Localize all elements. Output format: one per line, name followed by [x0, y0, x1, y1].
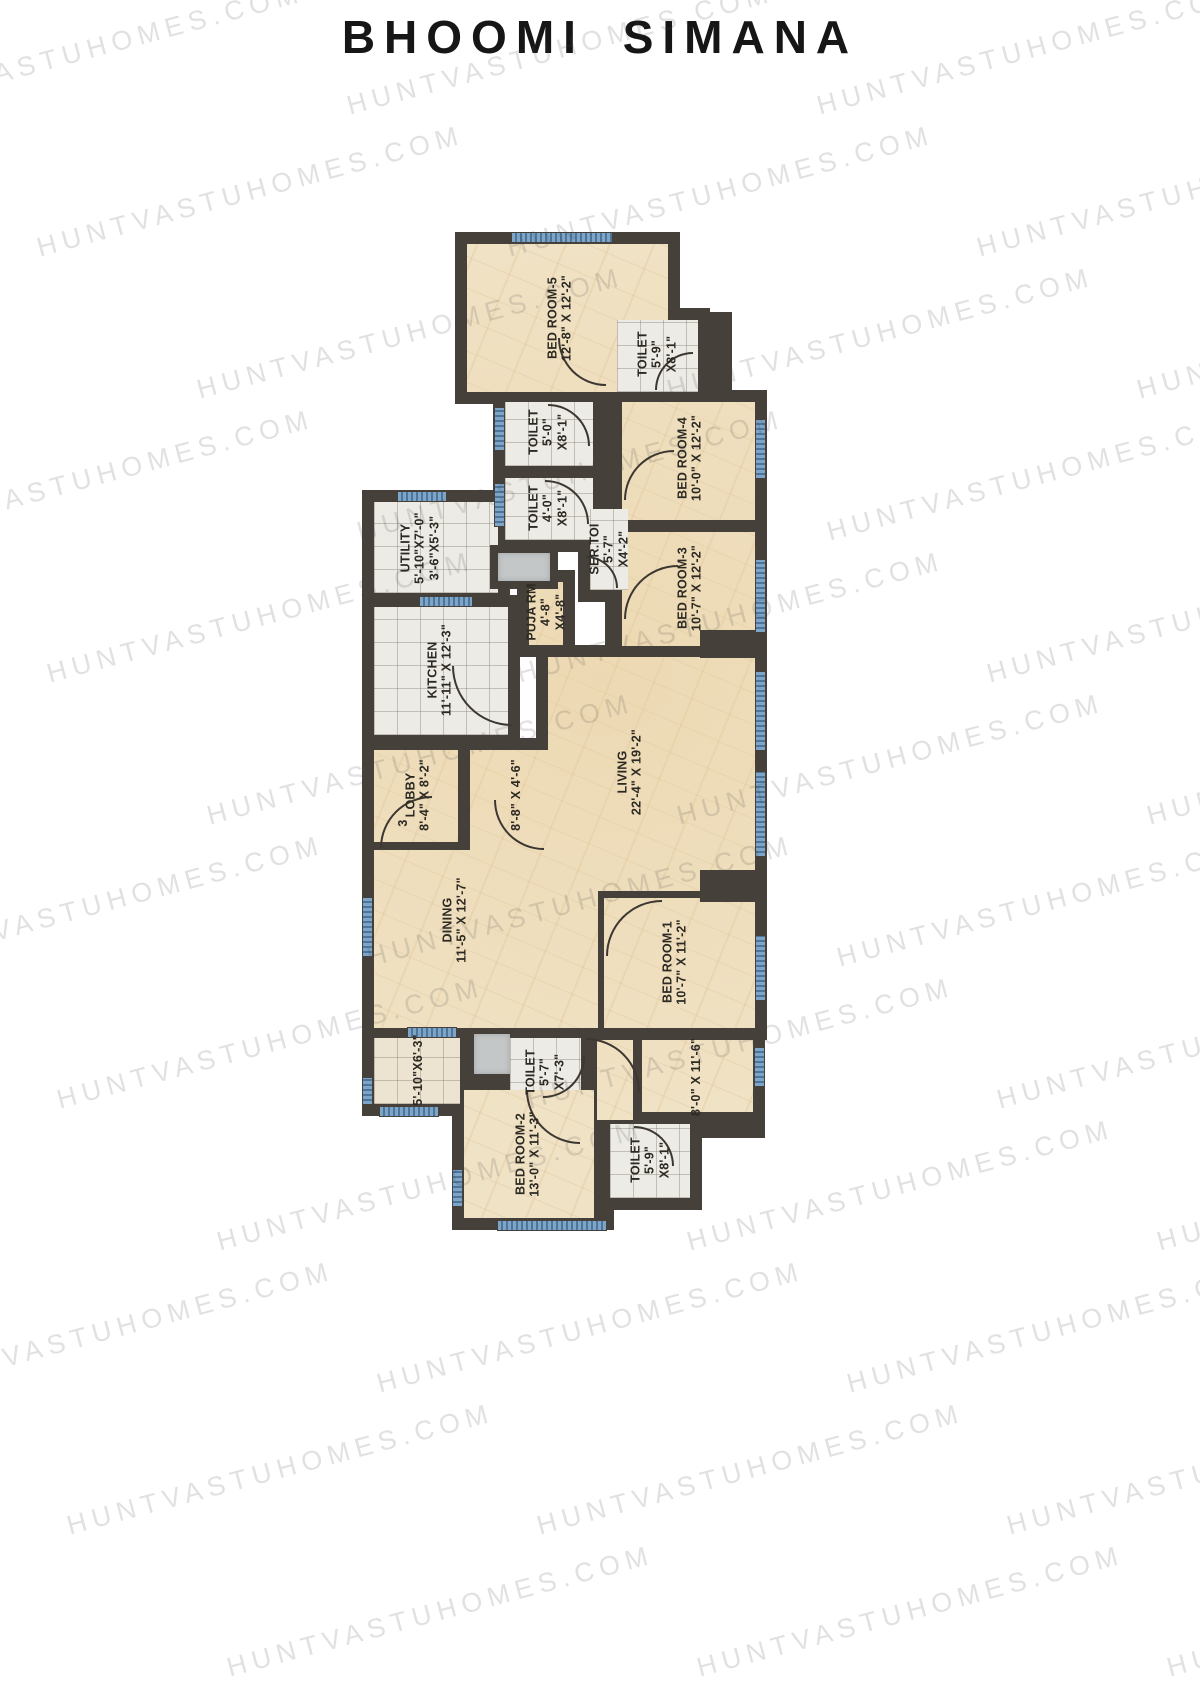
window-bedroom2: [498, 1221, 606, 1230]
room-label-bedroom2: BED ROOM-2 13'-0" X 11'-3": [514, 1111, 543, 1196]
room-dims: 8'-0" X 11'-6": [689, 1038, 703, 1116]
room-dims2: X4'-8": [553, 583, 567, 640]
window-bedroom2-left: [453, 1170, 462, 1206]
room-dims: 5'-10"X6'-3": [411, 1034, 425, 1106]
room-label-toilet4: TOILET 5'-7" X7'-3": [523, 1049, 566, 1094]
room-dims: 12'-8" X 12'-2": [560, 275, 574, 361]
room-name: KITCHEN: [426, 624, 440, 716]
room-dims2: X4'-2": [616, 523, 630, 574]
room-label-bedroom3: BED ROOM-3 10'-7" X 12'-2": [676, 545, 705, 631]
shaft-box: [474, 1034, 510, 1074]
floor-living: [548, 657, 755, 891]
room-label-bedroom5: BED ROOM-5 12'-8" X 12'-2": [546, 275, 575, 361]
room-dims: 13'-0" X 11'-3": [528, 1111, 542, 1196]
room-label-passage: 8'-8" X 4'-6": [509, 759, 523, 831]
room-label-living: LIVING 22'-4" X 19'-2": [616, 729, 645, 815]
room-name: BED ROOM-1: [661, 919, 675, 1004]
room-label-foyer: 8'-0" X 11'-6": [689, 1038, 703, 1116]
window-dry-bottom: [380, 1107, 438, 1116]
window-bedroom4: [756, 420, 765, 478]
room-label-toilet2: TOILET 5'-0" X8'-1": [526, 409, 569, 454]
room-dims: 11'-11" X 12'-3": [440, 624, 454, 716]
room-dims: 8'-8" X 4'-6": [509, 759, 523, 831]
room-name: LIVING: [616, 729, 630, 815]
room-name: TOILET: [526, 485, 540, 530]
room-label-utility: UTILITY 5'-10"X7'-0" 3'-6"X5'-3": [398, 512, 441, 584]
room-dims: 10'-7" X 12'-2": [690, 545, 704, 631]
window-utility: [398, 492, 446, 501]
room-dims: 4'-0": [541, 485, 555, 530]
floor-plan-page: { "title": "BHOOMI SIMANA", "watermark_t…: [0, 0, 1200, 1697]
room-dims2: X8'-1": [664, 331, 678, 376]
room-dims2: X8'-1": [555, 409, 569, 454]
room-dims: 22'-4" X 19'-2": [630, 729, 644, 815]
wall-chunk-living: [700, 870, 767, 902]
window-living-2: [756, 772, 765, 856]
window-dining: [363, 898, 372, 956]
room-name: PUJA RM: [524, 583, 538, 640]
window-dry-left: [363, 1078, 372, 1104]
room-label-dry-area: 5'-10"X6'-3": [411, 1034, 425, 1106]
floor-corridor: [550, 884, 598, 1028]
room-label-bedroom4: BED ROOM-4 10'-0" X 12'-2": [676, 415, 705, 501]
window-toilet2: [495, 408, 504, 450]
window-kitchen: [420, 597, 472, 606]
floor-plan: BED ROOM-5 12'-8" X 12'-2" TOILET 5'-9" …: [0, 0, 1200, 1697]
door-number: 3: [396, 819, 410, 826]
room-name: TOILET: [628, 1137, 642, 1182]
door-number-label: 3: [396, 819, 410, 826]
room-name: UTILITY: [398, 512, 412, 584]
room-dims: 5'-7": [538, 1049, 552, 1094]
room-dims: 5'-9": [643, 1137, 657, 1182]
room-label-ser-toilet: SER.TOI 5'-7" X4'-2": [587, 523, 630, 574]
room-name: DINING: [441, 877, 455, 962]
room-dims: 10'-0" X 12'-2": [690, 415, 704, 501]
room-label-toilet3: TOILET 4'-0" X8'-1": [526, 485, 569, 530]
window-living-1: [756, 672, 765, 750]
window-foyer: [755, 1048, 764, 1086]
room-dims: 5'-9": [650, 331, 664, 376]
room-dims2: X8'-1": [555, 485, 569, 530]
room-dims: 11'-5" X 12'-7": [455, 877, 469, 962]
window-bedroom5: [512, 233, 612, 242]
window-toilet3: [495, 484, 504, 526]
room-name: SER.TOI: [587, 523, 601, 574]
room-label-dining: DINING 11'-5" X 12'-7": [441, 877, 470, 962]
room-name: BED ROOM-3: [676, 545, 690, 631]
room-label-bedroom1: BED ROOM-1 10'-7" X 11'-2": [661, 919, 690, 1004]
room-name: TOILET: [635, 331, 649, 376]
room-dims: 4'-8": [539, 583, 553, 640]
room-label-toilet1: TOILET 5'-9" X8'-1": [635, 331, 678, 376]
room-label-puja-room: PUJA RM 4'-8" X4'-8": [524, 583, 567, 640]
room-name: BED ROOM-4: [676, 415, 690, 501]
room-dims2: 3'-6"X5'-3": [427, 512, 441, 584]
wall-chunk-bedroom3: [700, 630, 767, 658]
room-dims2: X8'-1": [657, 1137, 671, 1182]
room-dims: 10'-7" X 11'-2": [675, 919, 689, 1004]
page-title: BHOOMI SIMANA: [0, 10, 1200, 64]
room-label-toilet5: TOILET 5'-9" X8'-1": [628, 1137, 671, 1182]
wall-stub-top-right: [700, 312, 732, 400]
duct-box: [498, 553, 550, 581]
room-name: BED ROOM-5: [546, 275, 560, 361]
window-bedroom1: [756, 936, 765, 1000]
room-name: TOILET: [523, 1049, 537, 1094]
room-name: BED ROOM-2: [514, 1111, 528, 1196]
room-name: TOILET: [526, 409, 540, 454]
room-label-kitchen: KITCHEN 11'-11" X 12'-3": [426, 624, 455, 716]
room-dims: 5'-7": [602, 523, 616, 574]
room-dims: 8'-4" X 8'-2": [418, 759, 432, 831]
room-dims: 5'-0": [541, 409, 555, 454]
room-dims2: X7'-3": [552, 1049, 566, 1094]
window-bedroom3: [756, 560, 765, 632]
room-dims: 5'-10"X7'-0": [413, 512, 427, 584]
